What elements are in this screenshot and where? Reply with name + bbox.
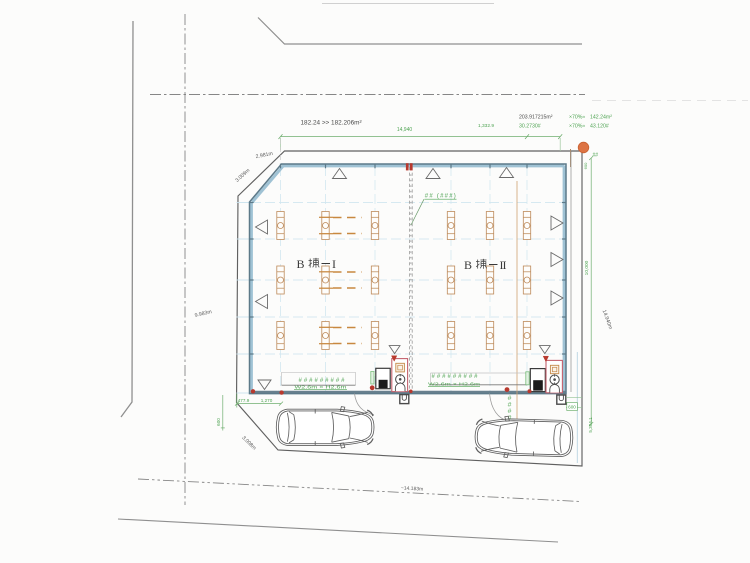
svg-text:1,270: 1,270 bbox=[261, 398, 273, 403]
svg-text:I: I bbox=[332, 257, 336, 271]
svg-text:43.120#: 43.120# bbox=[590, 124, 609, 130]
svg-text:B: B bbox=[464, 258, 472, 272]
svg-text:477.9: 477.9 bbox=[238, 398, 250, 403]
svg-text:30.2730#: 30.2730# bbox=[519, 124, 541, 130]
svg-text:B: B bbox=[297, 257, 305, 271]
svg-text:5,304.1: 5,304.1 bbox=[588, 417, 593, 433]
svg-text:182.24 >> 182.206m²: 182.24 >> 182.206m² bbox=[301, 120, 362, 127]
svg-text:#########: ######### bbox=[299, 378, 346, 384]
svg-text:600: 600 bbox=[568, 405, 576, 410]
svg-text:600: 600 bbox=[583, 162, 588, 169]
svg-text:×70%≈: ×70%≈ bbox=[569, 124, 585, 130]
svg-text:##: ## bbox=[593, 153, 599, 159]
svg-text:×70%≈: ×70%≈ bbox=[569, 115, 585, 121]
svg-text:## (###): ## (###) bbox=[425, 194, 456, 200]
svg-text:1,332.9: 1,332.9 bbox=[478, 123, 494, 129]
svg-text:203.917215m²: 203.917215m² bbox=[519, 115, 553, 121]
svg-text:~14.183m: ~14.183m bbox=[401, 485, 424, 492]
svg-text:#########: ######### bbox=[432, 374, 479, 380]
svg-text:II: II bbox=[500, 258, 507, 272]
svg-text:10,000: 10,000 bbox=[584, 260, 590, 275]
svg-text:142.24m²: 142.24m² bbox=[590, 115, 612, 121]
svg-text:600: 600 bbox=[216, 418, 221, 426]
svg-text:14,940: 14,940 bbox=[397, 127, 413, 133]
